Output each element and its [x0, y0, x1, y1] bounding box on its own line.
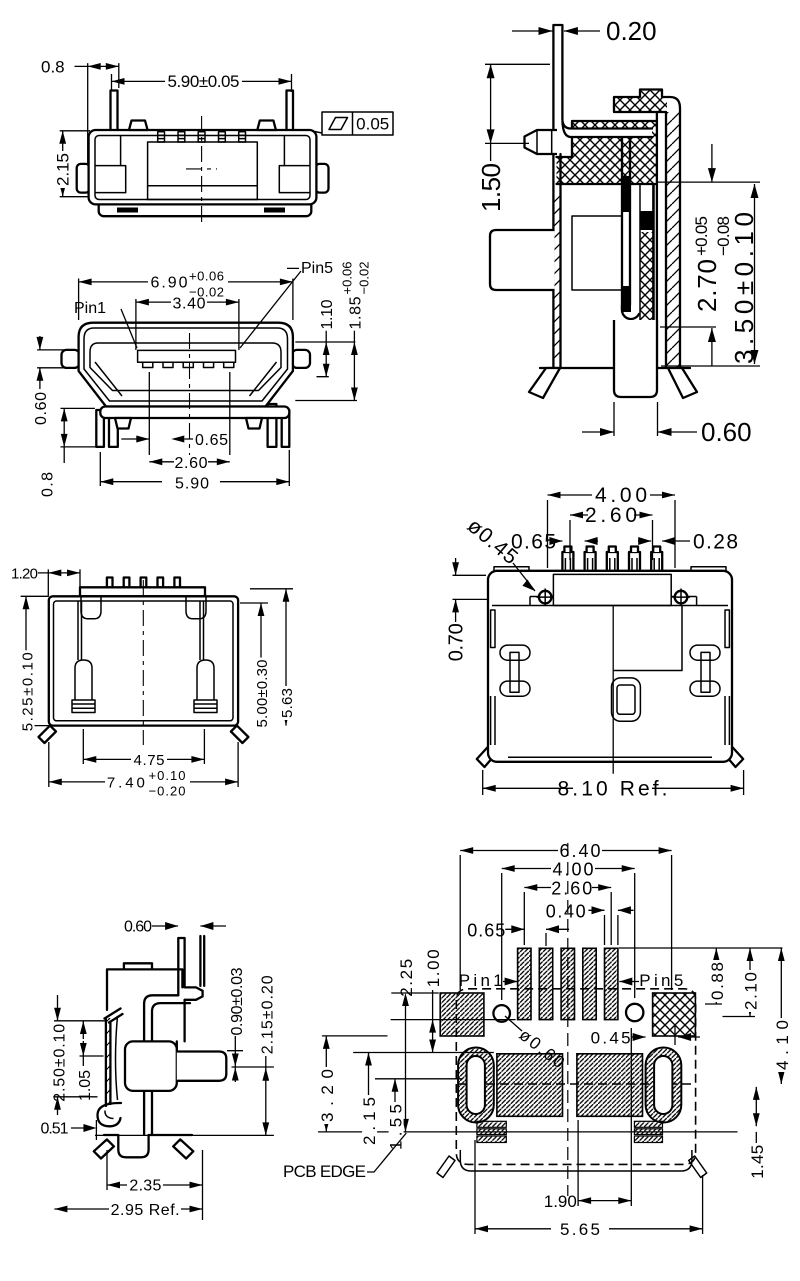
svg-text:1.50: 1.50: [476, 163, 506, 212]
svg-text:2.15: 2.15: [360, 1097, 379, 1145]
svg-text:0.05: 0.05: [356, 115, 389, 134]
svg-text:2.25: 2.25: [397, 959, 416, 997]
svg-text:3.50±0.10: 3.50±0.10: [729, 212, 759, 364]
svg-text:PCB EDGE: PCB EDGE: [283, 1162, 366, 1181]
svg-text:+0.06: +0.06: [189, 269, 224, 284]
svg-text:1.85: 1.85: [348, 296, 365, 329]
svg-text:3.20: 3.20: [318, 1069, 337, 1122]
svg-text:0.60: 0.60: [124, 919, 152, 936]
svg-text:0.90±0.03: 0.90±0.03: [229, 967, 246, 1035]
svg-text:0.8: 0.8: [40, 472, 57, 497]
svg-text:0.8: 0.8: [41, 58, 65, 77]
svg-text:0.65: 0.65: [195, 432, 228, 449]
svg-text:0.60: 0.60: [33, 392, 50, 425]
svg-text:−0.02: −0.02: [357, 262, 372, 295]
svg-text:+0.06: +0.06: [340, 262, 355, 295]
svg-text:0.65: 0.65: [467, 921, 505, 941]
svg-text:Pin1: Pin1: [74, 300, 106, 317]
svg-text:0.45: 0.45: [591, 1029, 631, 1048]
svg-text:6.90: 6.90: [151, 275, 188, 292]
svg-text:1.00: 1.00: [424, 949, 443, 987]
svg-text:1.20: 1.20: [11, 566, 38, 583]
svg-text:6.40: 6.40: [560, 841, 601, 861]
svg-text:2.50±0.10: 2.50±0.10: [51, 1024, 68, 1102]
svg-text:+0.10: +0.10: [149, 768, 186, 783]
svg-text:4.75: 4.75: [134, 752, 165, 769]
svg-text:2.95 Ref.: 2.95 Ref.: [111, 1202, 180, 1219]
svg-text:2.60: 2.60: [175, 455, 208, 472]
svg-text:5.00±0.30: 5.00±0.30: [254, 660, 271, 728]
svg-text:2.15±0.20: 2.15±0.20: [259, 975, 276, 1054]
svg-text:Pin1: Pin1: [459, 971, 503, 990]
svg-text:2.15: 2.15: [54, 153, 73, 186]
svg-text:Pin5: Pin5: [639, 971, 683, 990]
svg-text:1.45: 1.45: [748, 1145, 767, 1179]
svg-text:0.51: 0.51: [41, 1121, 69, 1138]
svg-text:0.28: 0.28: [693, 531, 738, 554]
svg-text:2.60: 2.60: [551, 879, 592, 899]
svg-text:5.25±0.10: 5.25±0.10: [20, 652, 37, 731]
svg-text:4.10: 4.10: [773, 1020, 792, 1070]
svg-text:0.60: 0.60: [701, 417, 752, 447]
svg-text:0.20: 0.20: [606, 16, 657, 46]
svg-text:2.70: 2.70: [692, 259, 722, 312]
svg-text:Pin5: Pin5: [301, 260, 333, 277]
svg-text:1.10: 1.10: [319, 299, 336, 329]
svg-text:5.90±0.05: 5.90±0.05: [168, 72, 240, 91]
svg-text:−0.20: −0.20: [149, 784, 186, 799]
svg-text:4.00: 4.00: [553, 860, 594, 880]
svg-text:5.63: 5.63: [279, 688, 296, 718]
svg-text:1.05: 1.05: [77, 1070, 94, 1101]
svg-text:7.40: 7.40: [107, 775, 145, 792]
svg-text:1.90: 1.90: [544, 1192, 577, 1211]
svg-text:3.40: 3.40: [173, 296, 206, 313]
svg-text:2.10: 2.10: [742, 972, 761, 1010]
svg-text:1.55: 1.55: [387, 1104, 406, 1150]
svg-text:0.88: 0.88: [708, 962, 727, 1000]
svg-text:2.60: 2.60: [585, 504, 637, 527]
svg-text:+0.05: +0.05: [692, 216, 711, 256]
svg-text:2.35: 2.35: [129, 1178, 161, 1195]
svg-text:5.90: 5.90: [175, 476, 209, 493]
svg-text:0.70: 0.70: [446, 623, 468, 661]
svg-text:5.65: 5.65: [560, 1220, 600, 1239]
svg-text:8.10 Ref.: 8.10 Ref.: [558, 778, 668, 801]
svg-text:0.40: 0.40: [546, 902, 586, 922]
